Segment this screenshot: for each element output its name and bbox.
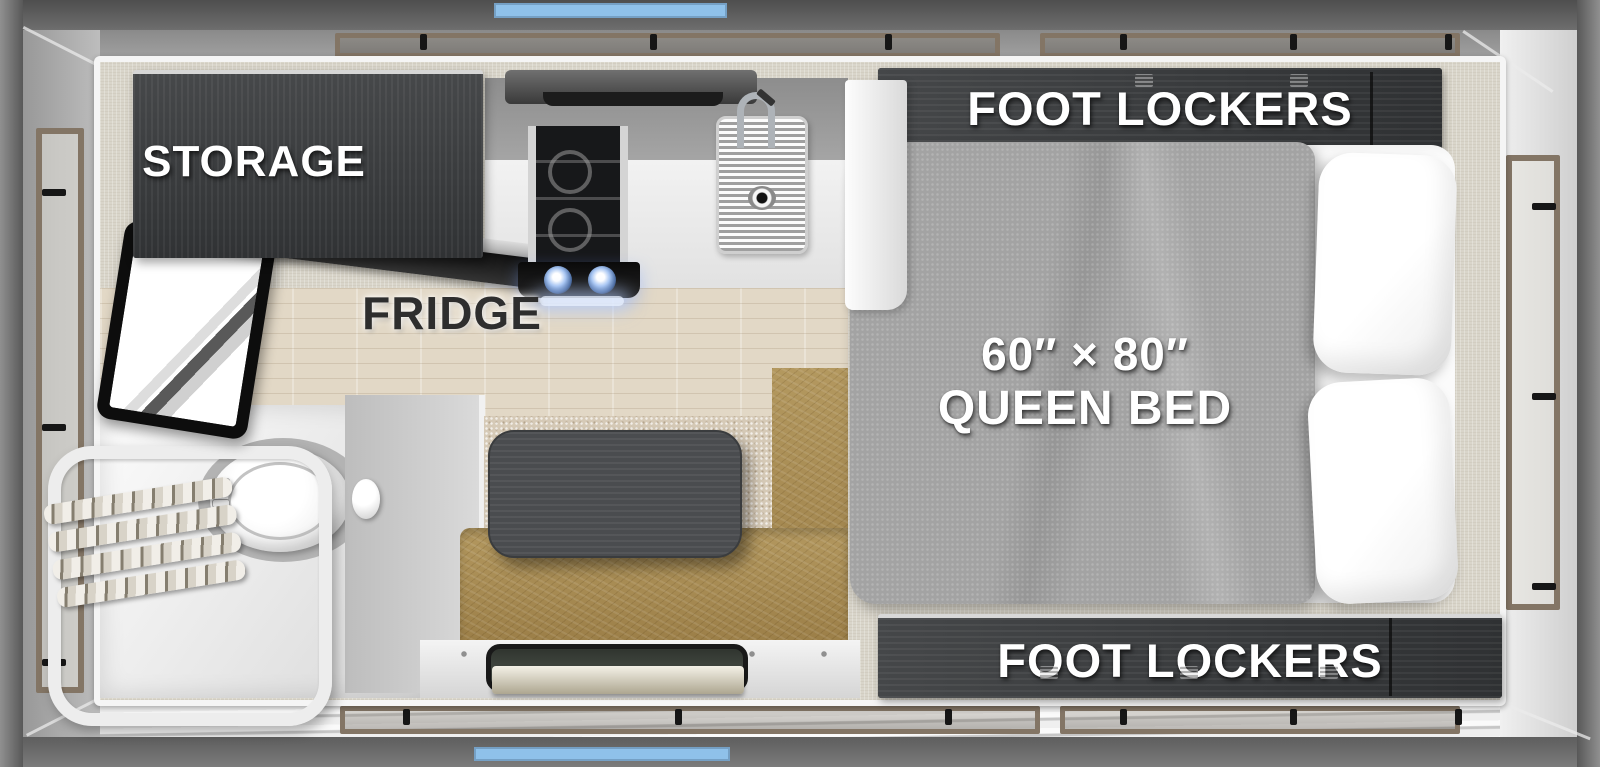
cooktop bbox=[528, 126, 628, 278]
camper-floorplan: STORAGE FOOT LOCKERS 60″ × 80″ QUEEN BED… bbox=[0, 0, 1600, 767]
window-clip-icon bbox=[1532, 203, 1556, 210]
window-clip-icon bbox=[1290, 34, 1297, 50]
tv-screen bbox=[109, 233, 263, 427]
roof-accent-bottom bbox=[474, 747, 730, 761]
roof-edge-bottom bbox=[0, 737, 1600, 767]
roof-edge-top bbox=[0, 0, 1600, 30]
bed-partition-wall bbox=[845, 80, 907, 310]
bed-type-label: QUEEN BED bbox=[885, 382, 1285, 434]
window-top-left bbox=[335, 33, 1000, 58]
cabinet-latch-icon bbox=[1290, 74, 1308, 87]
window-clip-icon bbox=[420, 34, 427, 50]
window-clip-icon bbox=[650, 34, 657, 50]
pillow bbox=[1312, 152, 1458, 377]
window-clip-icon bbox=[1290, 709, 1297, 725]
cabinet-latch-icon bbox=[1040, 666, 1058, 679]
cabinet-latch-icon bbox=[1180, 666, 1198, 679]
foot-lockers-front-cabinet: FOOT LOCKERS bbox=[878, 68, 1442, 152]
window-clip-icon bbox=[403, 709, 410, 725]
camper-outer-wall-right bbox=[1577, 0, 1600, 767]
storage-label: STORAGE bbox=[140, 136, 368, 188]
window-bottom-left bbox=[340, 706, 1040, 734]
foot-lockers-front-label: FOOT LOCKERS bbox=[967, 81, 1352, 136]
cabinet-divider bbox=[1370, 72, 1373, 150]
burner-icon bbox=[548, 208, 592, 252]
window-clip-icon bbox=[1532, 393, 1556, 400]
cabinet-latch-icon bbox=[1320, 666, 1338, 679]
window-clip-icon bbox=[885, 34, 892, 50]
window-clip-icon bbox=[1120, 34, 1127, 50]
window-clip-icon bbox=[1455, 709, 1462, 725]
window-clip-icon bbox=[42, 189, 66, 196]
window-clip-icon bbox=[1120, 709, 1127, 725]
cooktop-light bbox=[540, 296, 624, 306]
bed-size-label: 60″ × 80″ bbox=[885, 330, 1285, 378]
roof-accent-top bbox=[494, 3, 727, 18]
foot-lockers-rear-cabinet: FOOT LOCKERS bbox=[878, 614, 1502, 698]
entry-step-handle bbox=[492, 666, 744, 694]
window-clip-icon bbox=[42, 424, 66, 431]
dinette-table bbox=[488, 430, 742, 558]
cooktop-knob bbox=[588, 266, 616, 294]
pillow bbox=[1306, 376, 1459, 605]
cabinet-latch-icon bbox=[1135, 74, 1153, 87]
window-clip-icon bbox=[945, 709, 952, 725]
cabinet-divider bbox=[1389, 618, 1392, 696]
range-hood-vent bbox=[543, 92, 723, 106]
sink-drain-icon bbox=[748, 186, 776, 210]
fridge-label: FRIDGE bbox=[352, 288, 552, 338]
burner-icon bbox=[548, 150, 592, 194]
window-top-right bbox=[1040, 33, 1460, 58]
camper-outer-wall-left bbox=[0, 0, 23, 767]
toilet-flush-knob bbox=[352, 479, 380, 519]
foot-lockers-rear-label: FOOT LOCKERS bbox=[997, 633, 1382, 688]
window-clip-icon bbox=[1445, 34, 1452, 50]
window-clip-icon bbox=[1532, 583, 1556, 590]
window-clip-icon bbox=[675, 709, 682, 725]
window-side-right bbox=[1506, 155, 1560, 610]
window-bottom-right bbox=[1060, 706, 1460, 734]
